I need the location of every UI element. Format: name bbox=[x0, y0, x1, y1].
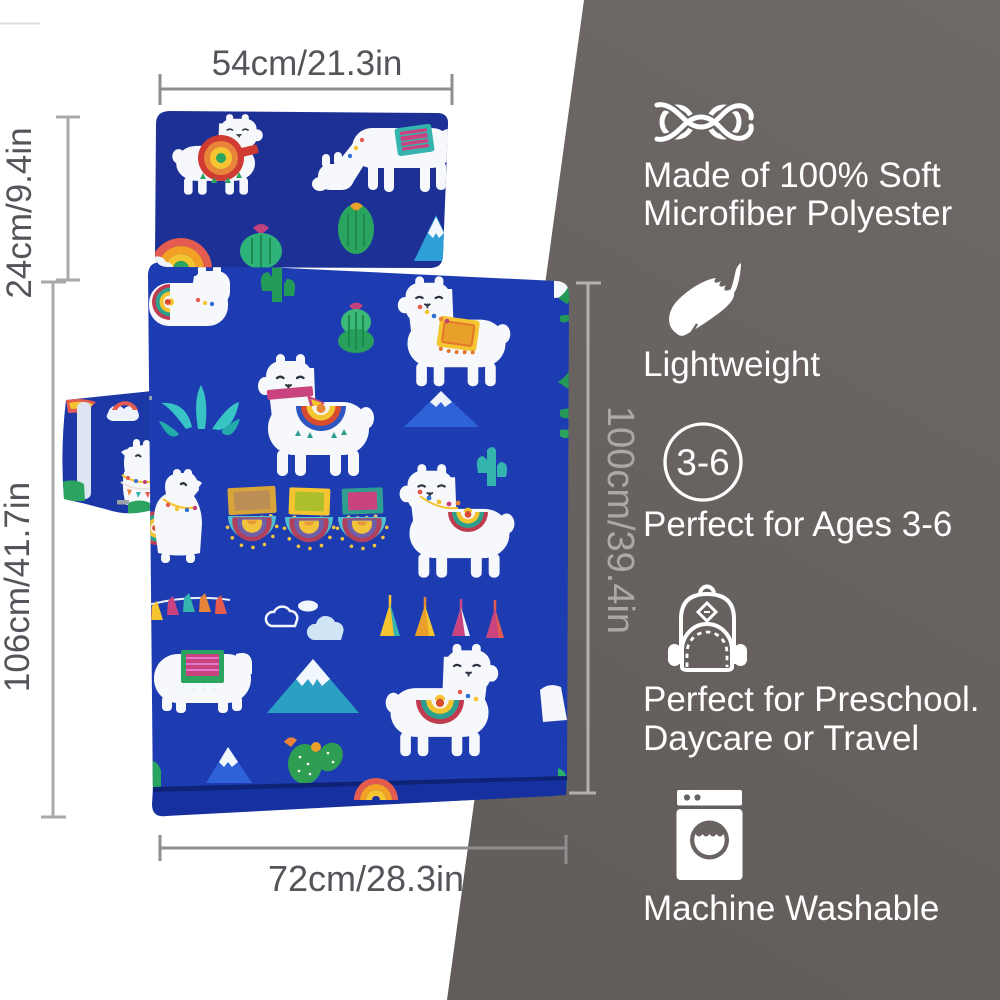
svg-text:Perfect for Preschool.: Perfect for Preschool. bbox=[643, 680, 980, 719]
svg-text:Made of 100% Soft: Made of 100% Soft bbox=[643, 156, 941, 195]
svg-text:Microfiber Polyester: Microfiber Polyester bbox=[643, 194, 953, 233]
svg-text:72cm/28.3in: 72cm/28.3in bbox=[268, 858, 464, 899]
svg-text:Lightweight: Lightweight bbox=[643, 345, 820, 384]
svg-text:106cm/41.7in: 106cm/41.7in bbox=[0, 482, 37, 692]
svg-text:3-6: 3-6 bbox=[676, 442, 729, 483]
svg-text:Machine Washable: Machine Washable bbox=[643, 889, 939, 928]
svg-text:24cm/9.4in: 24cm/9.4in bbox=[0, 127, 39, 298]
svg-text:100cm/39.4in: 100cm/39.4in bbox=[599, 406, 641, 634]
svg-text:Daycare or Travel: Daycare or Travel bbox=[643, 719, 919, 758]
svg-text:54cm/21.3in: 54cm/21.3in bbox=[212, 44, 403, 83]
svg-text:Perfect for Ages 3-6: Perfect for Ages 3-6 bbox=[643, 505, 952, 544]
